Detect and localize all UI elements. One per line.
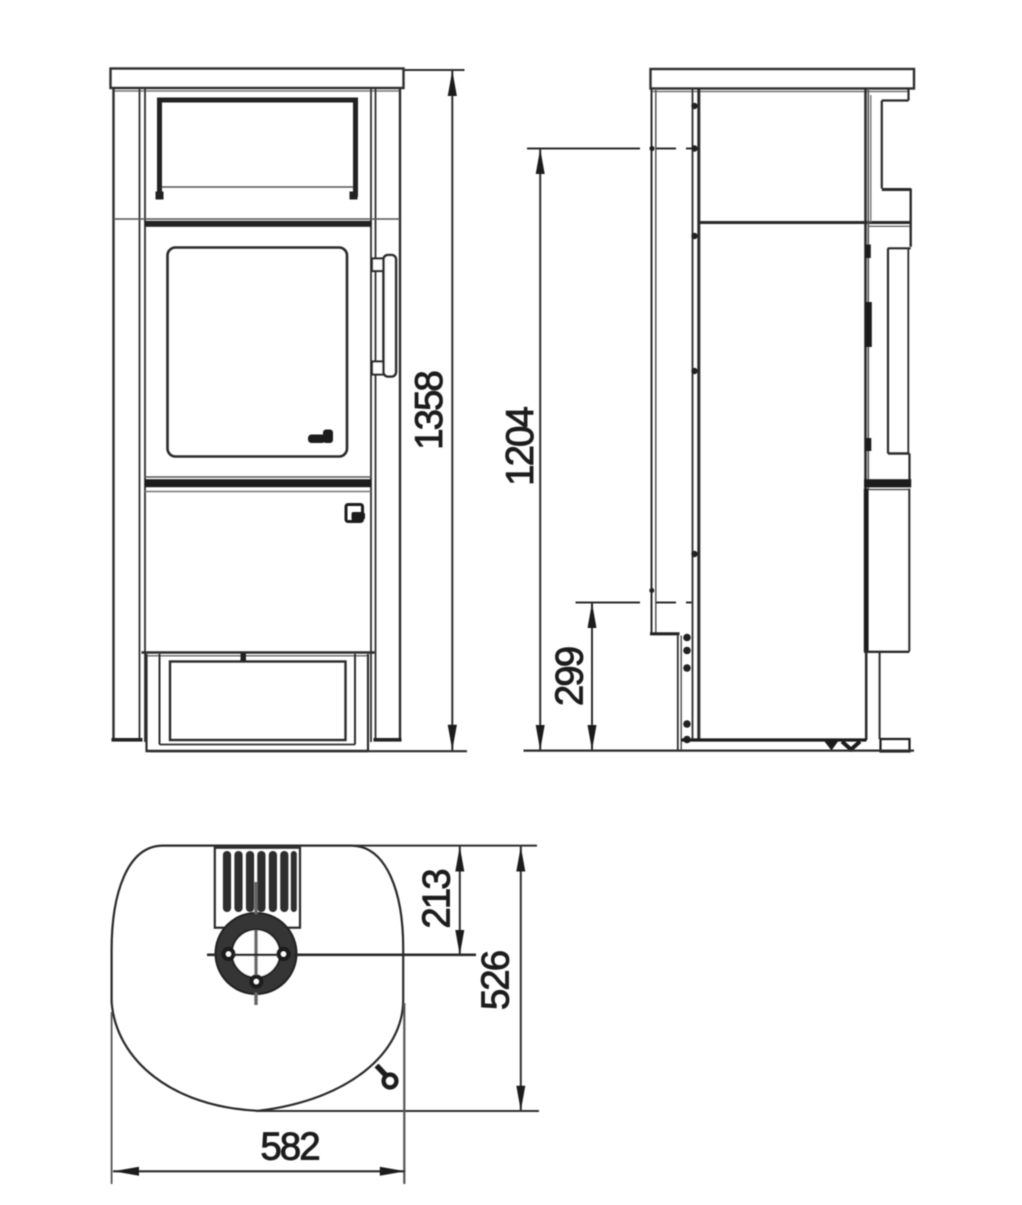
svg-text:213: 213 — [416, 870, 459, 929]
svg-text:1204: 1204 — [499, 407, 542, 486]
svg-text:582: 582 — [260, 1126, 319, 1169]
svg-text:526: 526 — [475, 951, 518, 1010]
svg-text:299: 299 — [549, 647, 592, 706]
svg-text:1358: 1358 — [408, 372, 451, 450]
